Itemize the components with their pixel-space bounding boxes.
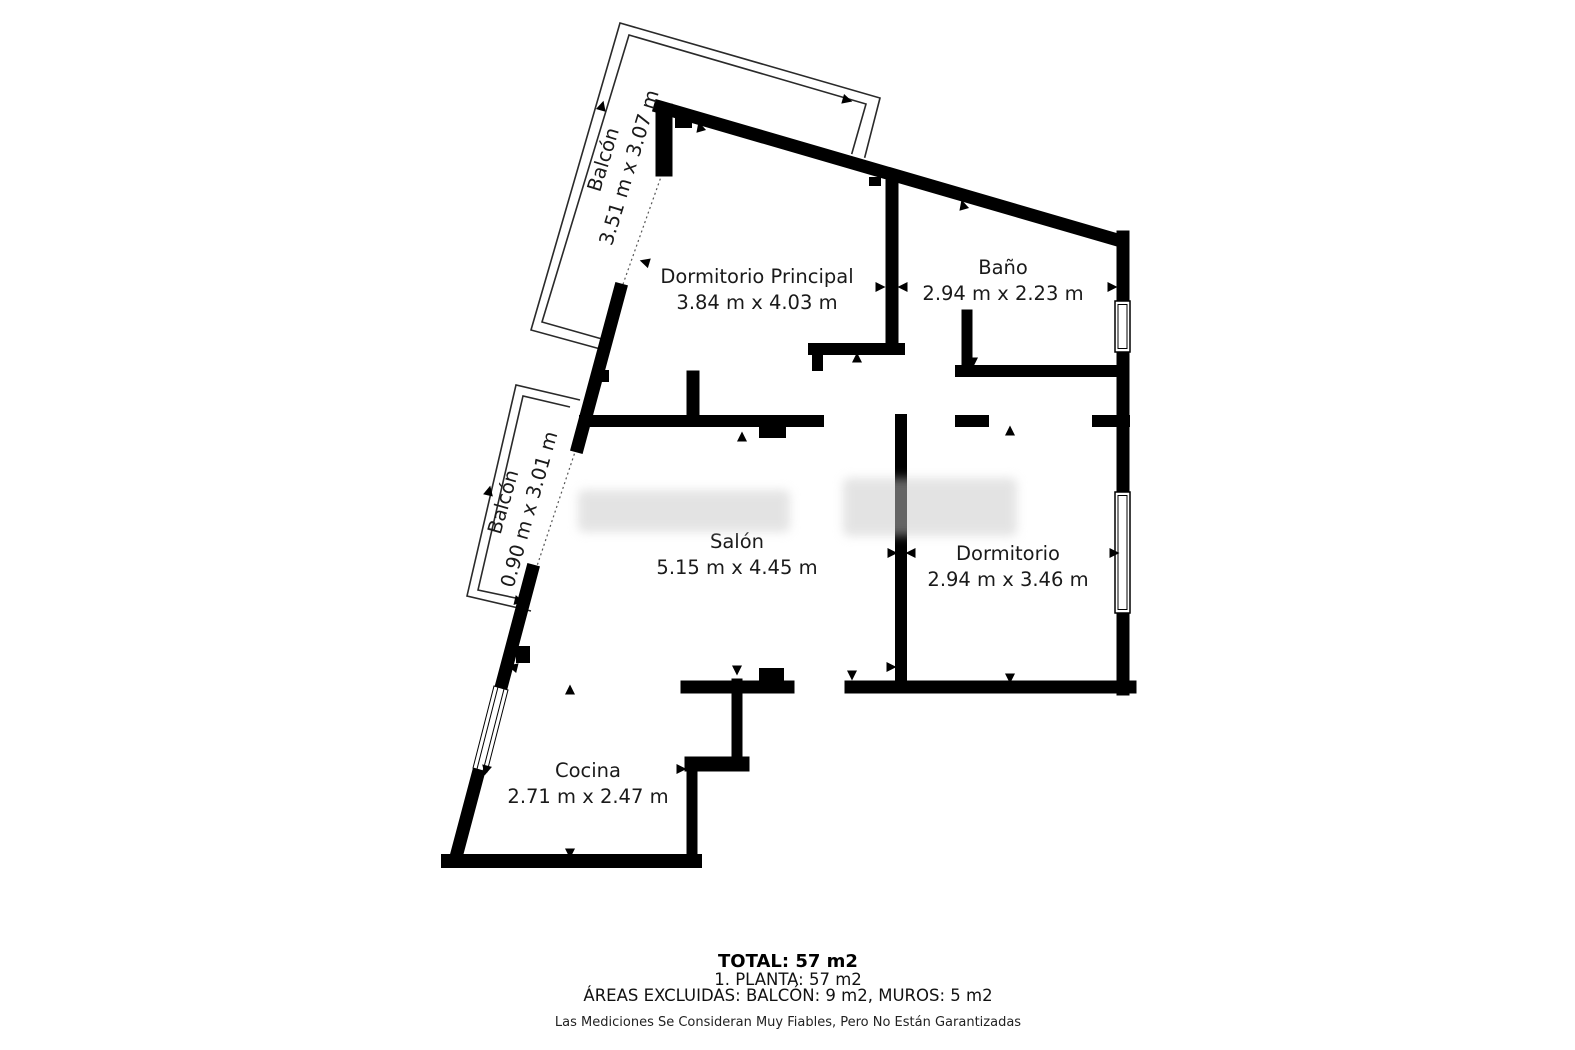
room-dims-salon: 5.15 m x 4.45 m — [656, 556, 817, 579]
room-dims-dormitorio-principal: 3.84 m x 4.03 m — [676, 291, 837, 314]
room-dims-bano: 2.94 m x 2.23 m — [922, 282, 1083, 305]
measure-arrow — [732, 666, 742, 676]
room-label-dormitorio-principal: Dormitorio Principal — [660, 265, 853, 288]
measure-arrow — [898, 282, 908, 292]
excluded-areas-text: ÁREAS EXCLUIDAS: BALCÓN: 9 m2, MUROS: 5 … — [583, 986, 992, 1005]
total-area-text: TOTAL: 57 m2 — [718, 951, 858, 972]
room-label-salon: Salón — [710, 530, 764, 553]
wall-stub — [759, 427, 786, 438]
room-dims-dormitorio: 2.94 m x 3.46 m — [927, 568, 1088, 591]
measure-arrow — [565, 685, 575, 695]
room-label-bano: Baño — [978, 256, 1028, 279]
disclaimer-text: Las Mediciones Se Consideran Muy Fiables… — [555, 1015, 1021, 1030]
room-label-cocina: Cocina — [555, 759, 621, 782]
window — [473, 686, 508, 772]
summary-text: TOTAL: 57 m2 1. PLANTA: 57 m2 ÁREAS EXCL… — [555, 951, 1021, 1030]
wall-stub — [759, 668, 784, 682]
measure-arrow — [1108, 282, 1118, 292]
wall-stub — [812, 349, 823, 371]
wall-stub — [516, 646, 530, 663]
measure-arrow — [876, 282, 886, 292]
wall-stub — [675, 118, 692, 128]
measure-arrow — [737, 432, 747, 442]
wall-stub — [869, 177, 881, 186]
window — [1115, 301, 1130, 352]
wall-stub — [597, 370, 609, 382]
measure-arrow — [1005, 426, 1015, 436]
floor-plan: Dormitorio Principal 3.84 m x 4.03 m Bañ… — [0, 0, 1575, 1050]
floor-plan-page: Dormitorio Principal 3.84 m x 4.03 m Bañ… — [0, 0, 1575, 1050]
measure-arrow — [847, 671, 857, 681]
room-dims-cocina: 2.71 m x 2.47 m — [507, 785, 668, 808]
room-label-dormitorio: Dormitorio — [956, 542, 1060, 565]
